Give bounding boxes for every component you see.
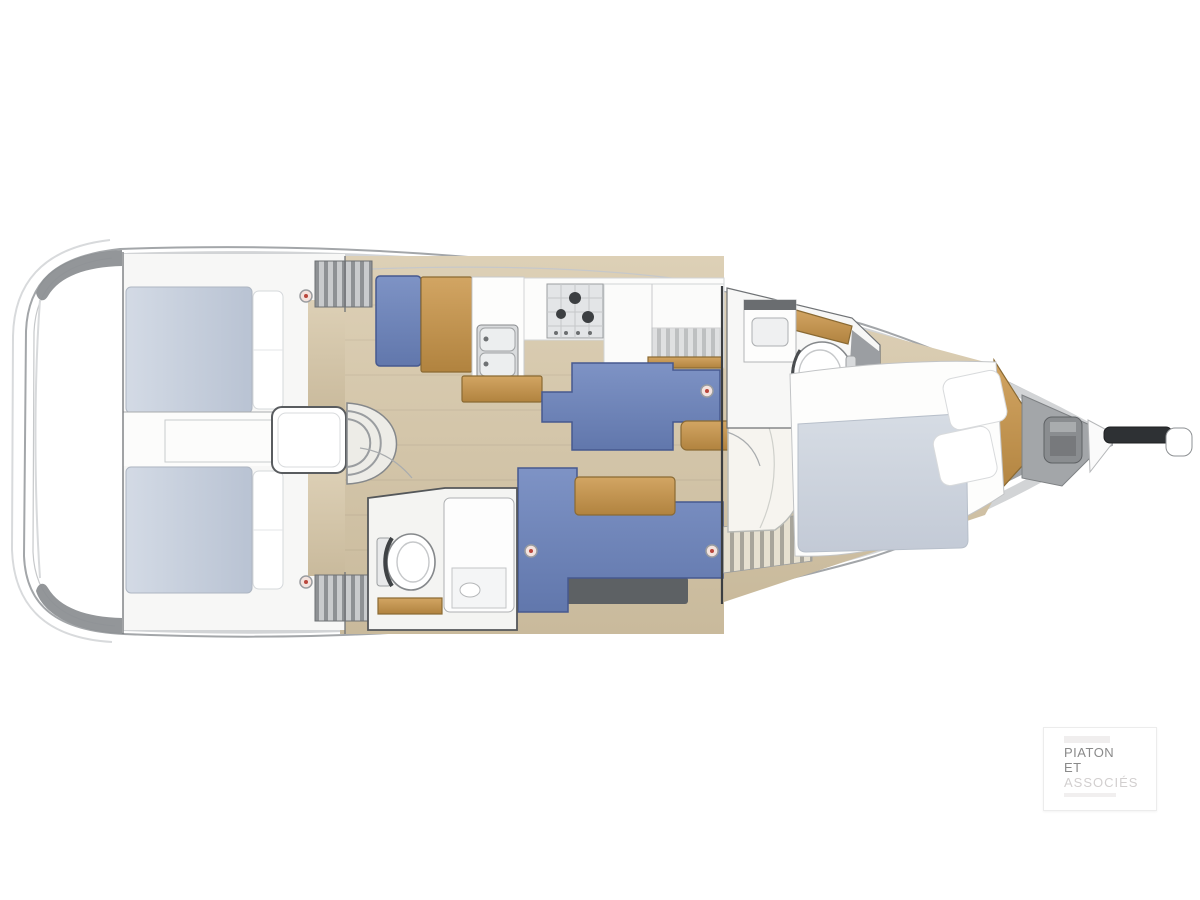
nav-seat (376, 276, 421, 366)
shelved-locker (315, 575, 372, 621)
double-bed-mattress (126, 287, 252, 413)
deck-hatch-icon (300, 290, 312, 302)
cabin-floor (308, 300, 345, 414)
faucet-icon (484, 337, 489, 342)
galley-locker (462, 376, 542, 402)
anchor-roller-tip (1166, 428, 1192, 456)
hatch-dot (710, 549, 714, 553)
pillow (931, 425, 999, 488)
deck-hatch-icon (300, 576, 312, 588)
sink-basin (460, 583, 480, 597)
cabin-floor (308, 468, 345, 576)
bowsprit (1104, 427, 1172, 443)
stove-burner (556, 309, 566, 319)
stove-knob (576, 331, 580, 335)
saloon-table (575, 477, 675, 515)
hatch-dot (304, 580, 308, 584)
head-floor-grating (378, 598, 442, 614)
bow-group (1022, 395, 1192, 486)
hatch-dot (705, 389, 709, 393)
architect-watermark: PIATON ET ASSOCIÉS (1043, 727, 1157, 811)
watermark-line-3: ASSOCIÉS (1064, 775, 1156, 790)
hatch-dot (304, 294, 308, 298)
pillow (941, 369, 1009, 432)
stove-burner (569, 292, 581, 304)
boat-floorplan-page: PIATON ET ASSOCIÉS (0, 0, 1200, 900)
stove-burner (582, 311, 594, 323)
watermark-faint-line (1064, 736, 1110, 743)
bed-pillow-bottom (931, 425, 999, 488)
nav-station (376, 276, 472, 372)
bed-pillow-top (941, 369, 1009, 432)
companionway-hatch (272, 407, 346, 473)
stove-knob (564, 331, 568, 335)
stove-knob (554, 331, 558, 335)
deck-plan-drawing (0, 0, 1200, 900)
hatch-dot (529, 549, 533, 553)
dish-rack (652, 328, 720, 358)
aft-head (368, 488, 517, 630)
watermark-line-2: ET (1064, 760, 1156, 775)
aft-cabin-starboard (123, 466, 372, 630)
deck-hatch-icon (701, 385, 713, 397)
faucet-icon (484, 362, 489, 367)
forward-cabin (790, 360, 1032, 556)
deck-hatch-icon (525, 545, 537, 557)
deck-hatch-icon (706, 545, 718, 557)
watermark-faint-line (1064, 793, 1116, 797)
windlass-detail (1050, 422, 1076, 432)
chart-table (421, 277, 472, 372)
stove-knob (588, 331, 592, 335)
double-bed-mattress (126, 467, 252, 593)
aft-cabin-port (123, 254, 372, 414)
vanity-counter-edge (744, 300, 796, 310)
watermark-line-1: PIATON (1064, 745, 1156, 760)
shelved-locker (315, 261, 372, 307)
windlass-detail (1050, 436, 1076, 456)
sink-basin (752, 318, 788, 346)
